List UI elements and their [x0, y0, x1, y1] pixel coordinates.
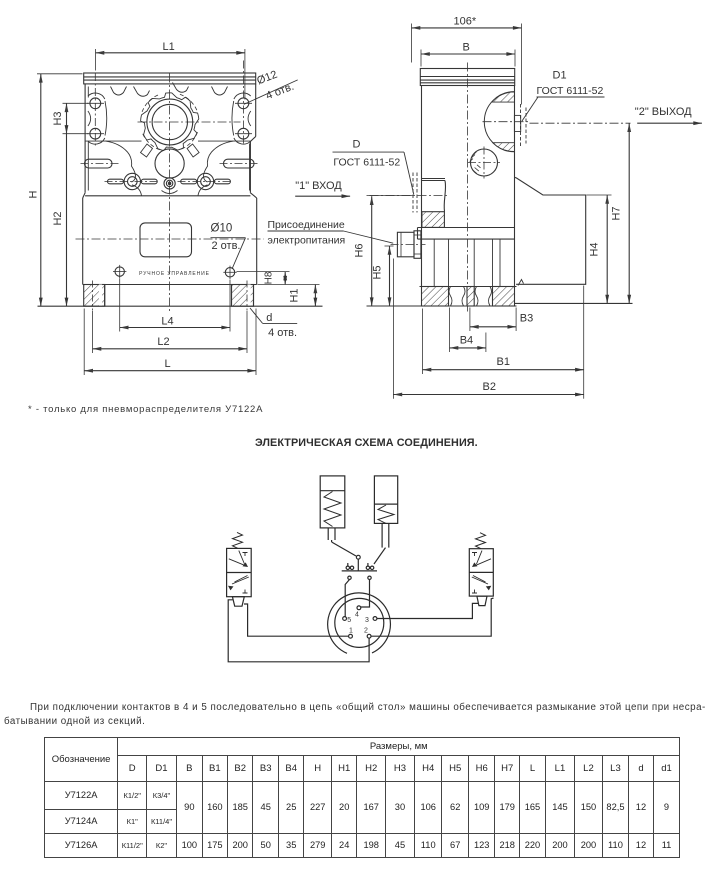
svg-text:D1: D1: [553, 70, 567, 82]
svg-text:Ø10: Ø10: [211, 223, 233, 235]
svg-text:H7: H7: [611, 206, 623, 220]
svg-text:1: 1: [349, 628, 353, 635]
svg-text:электропитания: электропитания: [268, 234, 346, 246]
svg-text:B: B: [463, 42, 470, 54]
svg-text:L1: L1: [163, 41, 175, 53]
svg-text:H6: H6: [354, 243, 366, 257]
svg-text:5: 5: [347, 617, 351, 624]
svg-text:"2" ВЫХОД: "2" ВЫХОД: [635, 106, 692, 118]
svg-text:H8: H8: [264, 271, 275, 284]
svg-text:РУЧНОЕ УПРАВЛЕНИЕ: РУЧНОЕ УПРАВЛЕНИЕ: [139, 271, 210, 277]
svg-text:2 отв.: 2 отв.: [212, 240, 241, 252]
svg-text:L4: L4: [161, 316, 173, 328]
svg-text:H2: H2: [52, 211, 64, 225]
svg-text:B3: B3: [520, 313, 533, 325]
svg-text:4: 4: [355, 612, 359, 619]
svg-text:d: d: [266, 312, 272, 324]
svg-text:2: 2: [364, 628, 368, 635]
svg-text:"1" ВХОД: "1" ВХОД: [295, 180, 342, 192]
svg-text:4 отв.: 4 отв.: [264, 81, 295, 103]
svg-text:B4: B4: [460, 335, 473, 347]
svg-text:B1: B1: [497, 356, 510, 368]
svg-text:H1: H1: [289, 288, 301, 302]
svg-text:106*: 106*: [454, 16, 477, 28]
svg-text:H4: H4: [589, 242, 601, 256]
svg-text:L2: L2: [157, 336, 169, 348]
svg-text:ГОСТ 6111-52: ГОСТ 6111-52: [333, 156, 400, 168]
svg-text:D: D: [353, 139, 361, 151]
svg-text:Присоединение: Присоединение: [268, 219, 345, 231]
svg-text:4 отв.: 4 отв.: [268, 327, 297, 339]
svg-text:B2: B2: [483, 381, 496, 393]
svg-text:H5: H5: [372, 265, 384, 279]
svg-text:H: H: [28, 190, 40, 198]
svg-text:H3: H3: [52, 111, 64, 125]
svg-text:L: L: [164, 358, 170, 370]
svg-text:ГОСТ 6111-52: ГОСТ 6111-52: [537, 85, 604, 97]
svg-text:3: 3: [365, 617, 369, 624]
svg-text:Ø12: Ø12: [255, 69, 279, 88]
